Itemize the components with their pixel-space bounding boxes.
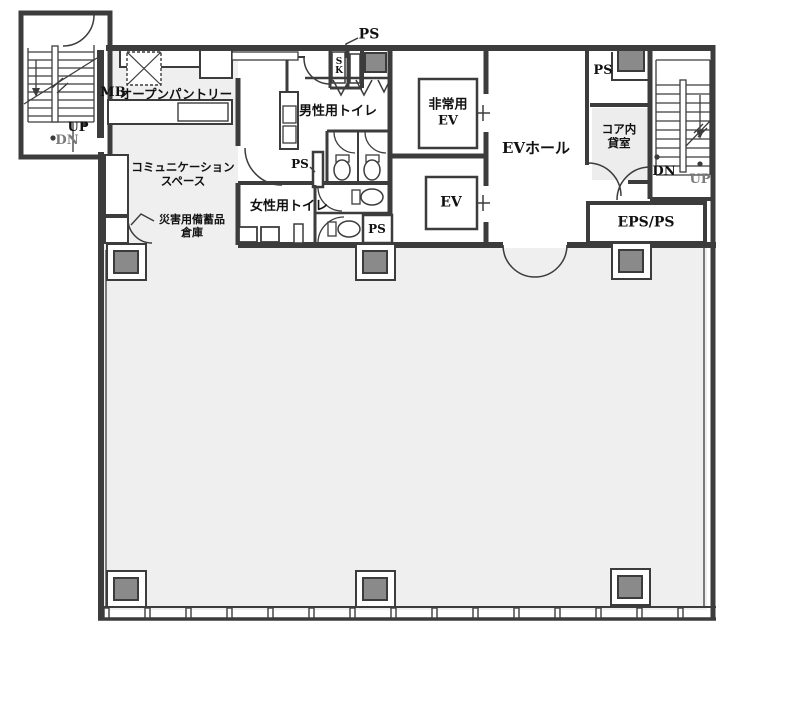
toilet [361,189,383,205]
column [114,578,138,600]
elevators [390,48,490,245]
floor-plan: PS SK MB オープンパントリー 男性用トイレ 非常用 EV EVホール P… [0,0,787,704]
ps-shaft-mid [313,152,323,187]
floor-plan-drawing [0,0,787,704]
label-ps-top: PS [359,27,380,44]
window-mullions [104,608,683,618]
label-dn-left: DN [55,133,78,149]
right-staircase [654,60,713,175]
label-emergency-ev: 非常用 EV [428,97,467,128]
label-womens-toilet: 女性用トイレ [250,199,328,215]
label-sk: SK [333,58,345,76]
label-ps-mid: PS [291,157,309,171]
column [618,50,644,71]
column [363,251,387,273]
label-mens-toilet: 男性用トイレ [299,104,377,120]
door-arc [245,148,282,185]
toilet [334,160,350,180]
disaster-storage-closet [105,217,128,243]
label-eps-ps: EPS/PS [617,215,674,232]
label-core-rental-room: コア内 貸室 [602,123,637,151]
label-disaster-storage: 災害用備蓄品 倉庫 [159,213,225,239]
toilet [364,160,380,180]
label-communication-space: コミュニケーション スペース [131,161,234,189]
label-ps-bottom: PS [368,222,386,236]
label-ev: EV [440,195,462,212]
label-ps-top-right: PS [593,63,612,79]
label-dn-right: DN [652,164,675,180]
sink [261,227,279,242]
column [114,251,138,273]
label-open-pantry: オープンパントリー [120,87,232,102]
column [618,576,642,598]
column [619,250,643,272]
label-ev-hall: EVホール [502,139,570,157]
column [365,53,386,72]
toilet [338,221,360,237]
sink [239,227,257,242]
door-arc [365,132,386,153]
door-arc [334,132,355,153]
label-up-right: UP [689,172,710,188]
column [363,578,387,600]
door-arc [304,58,330,84]
